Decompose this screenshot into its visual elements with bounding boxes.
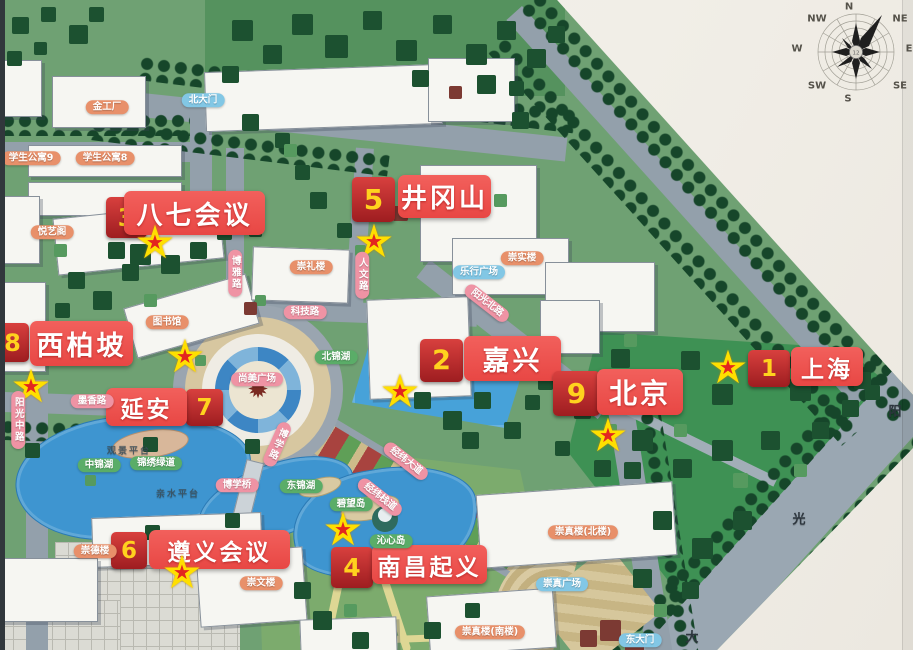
map-label-blue: 北大门 [182,93,225,107]
star-icon: ★★ [132,219,178,265]
marker-4[interactable]: 4南昌起义★★ [0,0,913,650]
map-label-pink: 尚美广场 [231,372,283,386]
map-label-orange: 崇文楼 [240,576,283,590]
map-label-plain: 亲水平台 [149,489,207,502]
star-icon: ★★ [377,368,423,414]
map-label-orange: 崇实楼 [501,251,544,265]
marker-label[interactable]: 延安 [106,388,187,426]
marker-8[interactable]: 8西柏坡★★ [0,0,913,650]
marker-label[interactable]: 井冈山 [398,175,491,218]
map-label-orange: 学生公寓8 [76,151,135,165]
campus-map-photo: ✹ [0,0,913,650]
marker-number-badge[interactable]: 6 [111,532,147,569]
map-label-char: 阳 [881,404,908,421]
marker-9[interactable]: 9北京★★ [0,0,913,650]
map-label-pink: 博学桥 [216,478,259,492]
marker-3[interactable]: 3八七会议★★ [0,0,913,650]
map-label-char: 大 [678,630,705,647]
map-label-pink: 科技路 [284,305,327,319]
map-label-orange: 崇礼楼 [290,260,333,274]
map-label-orange: 学生公寓9 [2,151,61,165]
map-label-blue: 乐行广场 [453,265,505,279]
map-label-pink: 经纬大道 [381,440,430,483]
marker-number-badge[interactable]: 4 [331,547,373,588]
marker-1[interactable]: 1上海★★ [0,0,913,650]
photo-edge [0,0,5,650]
marker-number-badge[interactable]: 9 [553,371,600,416]
marker-2[interactable]: 2嘉兴★★ [0,0,913,650]
marker-number-badge[interactable]: 5 [352,177,395,222]
map-label-pink: 博学路 [261,420,292,468]
map-label-green: 东锦湖 [280,479,323,493]
marker-5[interactable]: 5井冈山★★ [0,0,913,650]
marker-7[interactable]: 7延安★★ [0,0,913,650]
marker-label[interactable]: 北京 [597,369,683,415]
map-label-pink: 人文路 [355,252,369,299]
map-label-pink: 墨香路 [71,394,114,408]
star-icon: ★★ [159,549,205,595]
marker-label[interactable]: 遵义会议 [149,530,290,569]
star-icon: ★★ [320,506,366,552]
map-label-green: 碧望岛 [330,497,373,511]
map-label-char: 光 [785,512,812,529]
map-label-green: 中锦湖 [78,458,121,472]
marker-number-badge[interactable]: 7 [186,389,223,426]
map-label-green: 北锦湖 [315,350,358,364]
marker-number-badge[interactable]: 1 [748,350,790,387]
marker-number-badge[interactable]: 3 [106,197,147,238]
map-label-pink: 阳光北路 [462,282,511,325]
map-label-pink: 阳光中路 [11,391,25,449]
map-label-blue: 崇真广场 [536,577,588,591]
star-icon: ★★ [585,412,631,458]
map-label-orange: 图书馆 [146,315,189,329]
marker-6[interactable]: 6遵义会议★★ [0,0,913,650]
map-label-pink: 博雅路 [228,250,242,297]
marker-label[interactable]: 南昌起义 [372,545,487,584]
star-icon: ★★ [162,333,208,379]
overlay-layer: 北大门金工厂学生公寓9学生公寓8悦艺阁崇礼楼崇实楼乐行广场图书馆博雅路人文路科技… [0,0,913,650]
map-label-green: 沁心岛 [370,534,413,548]
map-label-orange: 崇德楼 [74,544,117,558]
marker-number-badge[interactable]: 2 [420,339,463,382]
marker-label[interactable]: 西柏坡 [30,321,133,366]
map-label-green: 锦绣绿道 [130,456,182,470]
map-label-orange: 崇真楼(南楼) [455,625,525,639]
map-label-orange: 崇真楼(北楼) [548,525,618,539]
star-icon: ★★ [705,344,751,390]
marker-label[interactable]: 上海 [791,347,863,386]
map-label-blue: 东大门 [619,633,662,647]
map-label-orange: 悦艺阁 [31,225,74,239]
marker-label[interactable]: 嘉兴 [464,336,561,381]
map-label-orange: 金工厂 [86,100,129,114]
marker-label[interactable]: 八七会议 [124,191,265,235]
